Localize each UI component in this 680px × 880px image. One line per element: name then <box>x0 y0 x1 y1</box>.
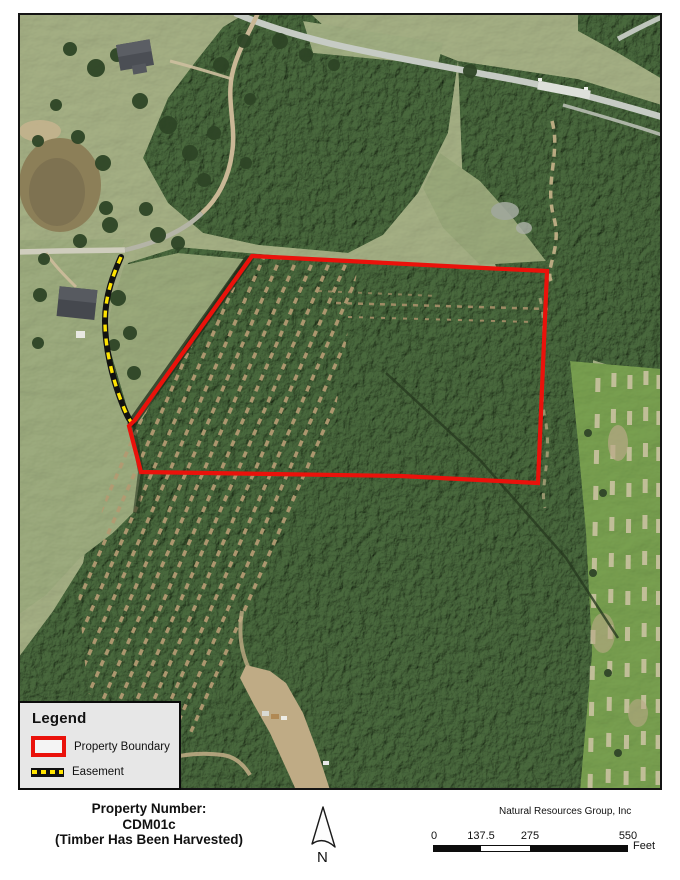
property-boundary-swatch <box>31 736 66 757</box>
house-south <box>57 286 98 320</box>
easement-swatch <box>31 768 64 777</box>
scale-unit: Feet <box>633 840 655 852</box>
property-label: Property Number: <box>8 801 290 817</box>
north-arrow-icon <box>312 807 335 847</box>
scale-bar-segments <box>433 845 628 852</box>
company-credit: Natural Resources Group, Inc <box>499 806 631 817</box>
west-road <box>18 250 125 252</box>
scale-tick: 0 <box>430 830 438 842</box>
property-note: (Timber Has Been Harvested) <box>8 832 290 848</box>
legend: Legend Property Boundary Easement <box>18 701 181 790</box>
map-report-page: { "legend": { "title": "Legend", "items"… <box>0 0 680 880</box>
scale-bar: 0 137.5 275 550 Feet <box>433 830 668 860</box>
north-arrow-label: N <box>317 849 328 866</box>
aerial-map: Legend Property Boundary Easement <box>18 13 662 790</box>
legend-title: Legend <box>32 710 179 727</box>
scale-tick: 275 <box>519 830 541 842</box>
scale-tick: 137.5 <box>465 830 497 842</box>
legend-item-label: Easement <box>72 766 124 778</box>
legend-item-label: Property Boundary <box>74 741 170 753</box>
property-number: CDM01c <box>8 817 290 833</box>
legend-item-easement: Easement <box>31 766 179 778</box>
legend-item-property-boundary: Property Boundary <box>31 736 179 757</box>
aerial-photo-canvas <box>18 13 662 790</box>
scale-bar-white-segment <box>481 846 530 851</box>
north-arrow: N <box>300 804 348 868</box>
property-caption: Property Number: CDM01c (Timber Has Been… <box>8 801 290 848</box>
shed <box>76 331 85 338</box>
